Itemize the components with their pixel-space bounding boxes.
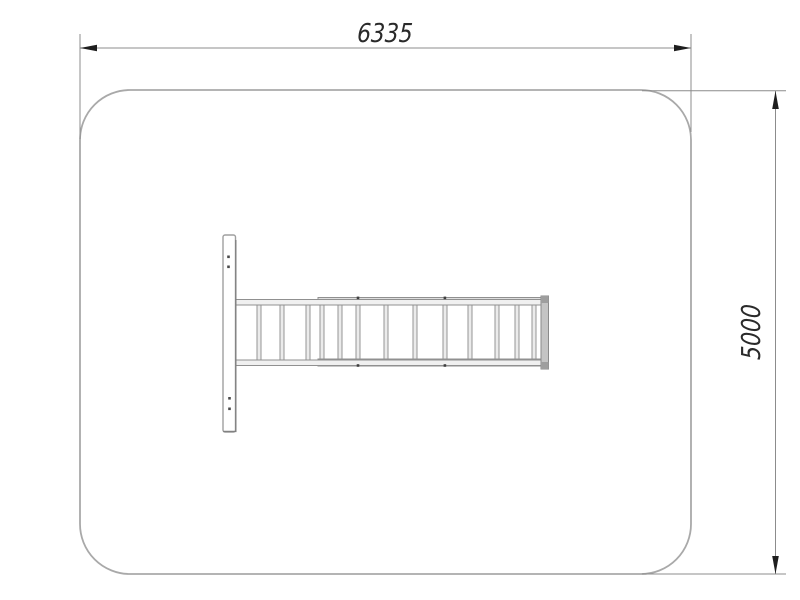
technical-drawing-page: 6335 5000	[0, 0, 800, 600]
ladder-end-bar	[541, 296, 549, 369]
arrowhead-down	[772, 556, 779, 574]
arrowhead-up	[772, 91, 779, 109]
height-dimension-label: 5000	[739, 299, 765, 365]
arrowhead-right	[674, 45, 691, 51]
width-dimension-value: 6335	[356, 21, 413, 47]
height-dimension-value: 5000	[739, 303, 765, 360]
width-dimension-label: 6335	[352, 21, 418, 47]
arrowhead-left	[80, 45, 97, 51]
drawing-canvas	[0, 0, 800, 600]
wall-post	[223, 235, 236, 432]
